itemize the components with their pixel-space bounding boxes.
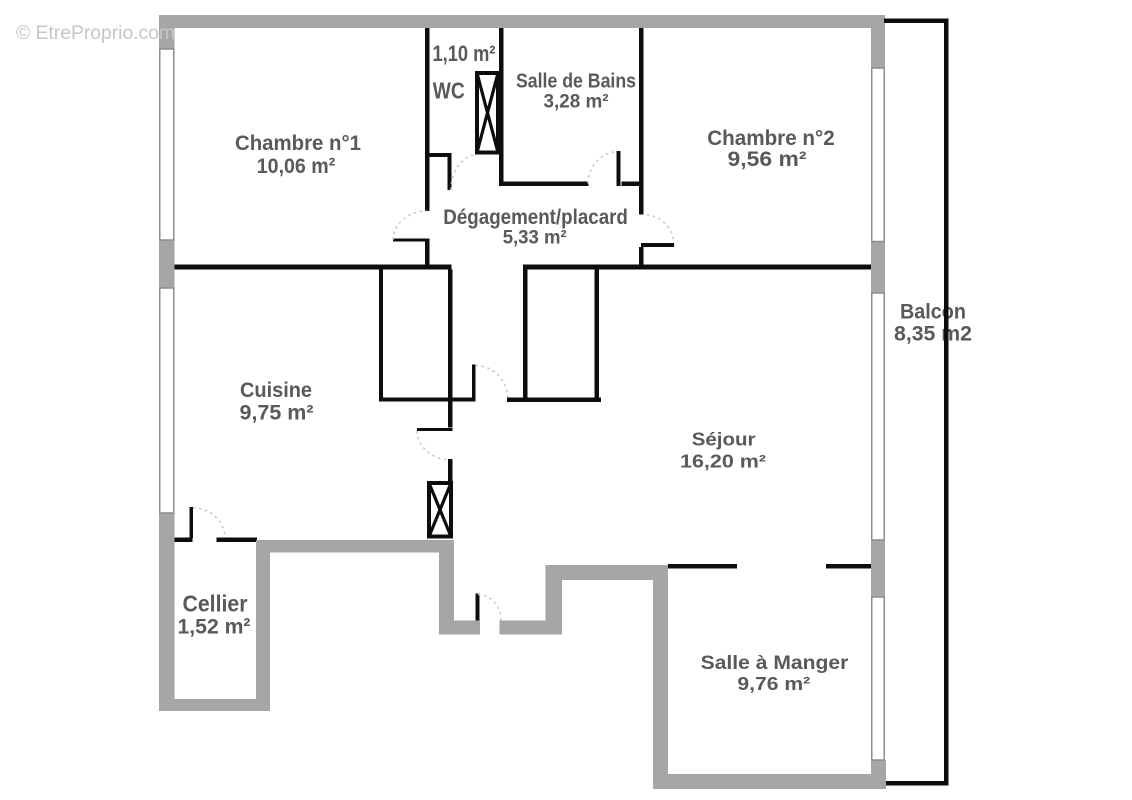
svg-text:10,06 m²: 10,06 m² xyxy=(257,154,336,178)
svg-text:1,10 m²: 1,10 m² xyxy=(433,41,496,66)
svg-text:Balcon: Balcon xyxy=(900,300,966,324)
svg-text:1,52 m²: 1,52 m² xyxy=(178,615,251,639)
svg-text:3,28 m²: 3,28 m² xyxy=(544,91,609,113)
svg-text:© EtreProprio.com: © EtreProprio.com xyxy=(16,22,175,44)
svg-text:Chambre n°2: Chambre n°2 xyxy=(707,127,835,150)
svg-text:Séjour: Séjour xyxy=(692,430,756,450)
svg-text:8,35 m2: 8,35 m2 xyxy=(894,323,972,346)
svg-text:Dégagement/placard: Dégagement/placard xyxy=(443,205,628,229)
svg-text:Cellier: Cellier xyxy=(183,591,248,617)
svg-text:Cuisine: Cuisine xyxy=(240,378,312,402)
svg-text:16,20 m²: 16,20 m² xyxy=(680,452,766,472)
svg-text:Chambre n°1: Chambre n°1 xyxy=(235,132,361,155)
svg-text:5,33 m²: 5,33 m² xyxy=(503,228,567,249)
svg-text:WC: WC xyxy=(433,78,465,104)
svg-text:9,76 m²: 9,76 m² xyxy=(737,673,810,694)
svg-text:Salle de Bains: Salle de Bains xyxy=(516,71,636,93)
svg-text:9,75 m²: 9,75 m² xyxy=(240,402,314,425)
svg-text:9,56 m²: 9,56 m² xyxy=(728,148,807,171)
svg-text:Salle à Manger: Salle à Manger xyxy=(701,652,849,674)
